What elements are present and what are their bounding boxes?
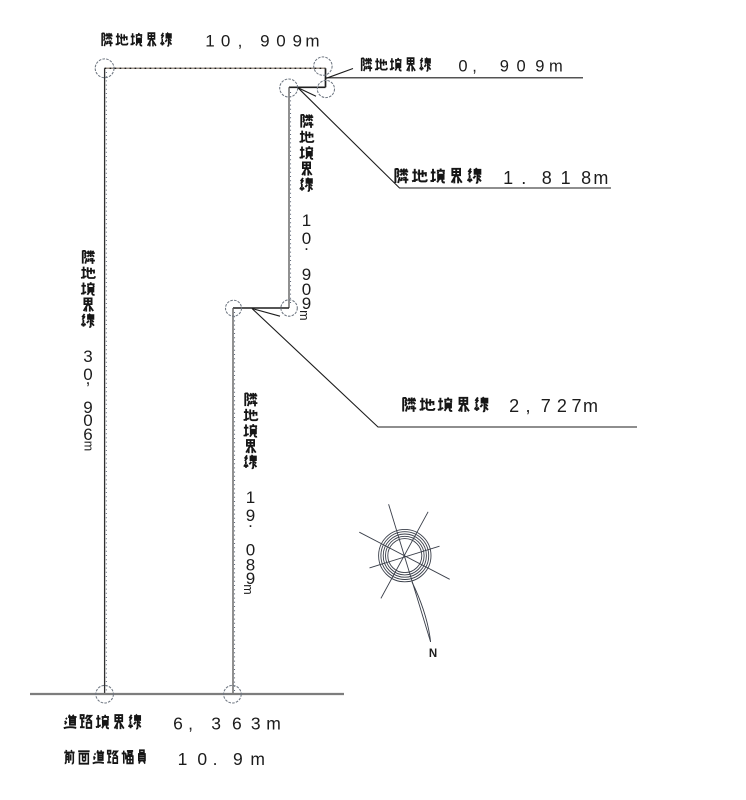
svg-text:m: m bbox=[297, 310, 311, 320]
svg-text:N: N bbox=[429, 648, 437, 660]
svg-text:m: m bbox=[241, 584, 255, 594]
svg-text:m: m bbox=[82, 441, 96, 451]
